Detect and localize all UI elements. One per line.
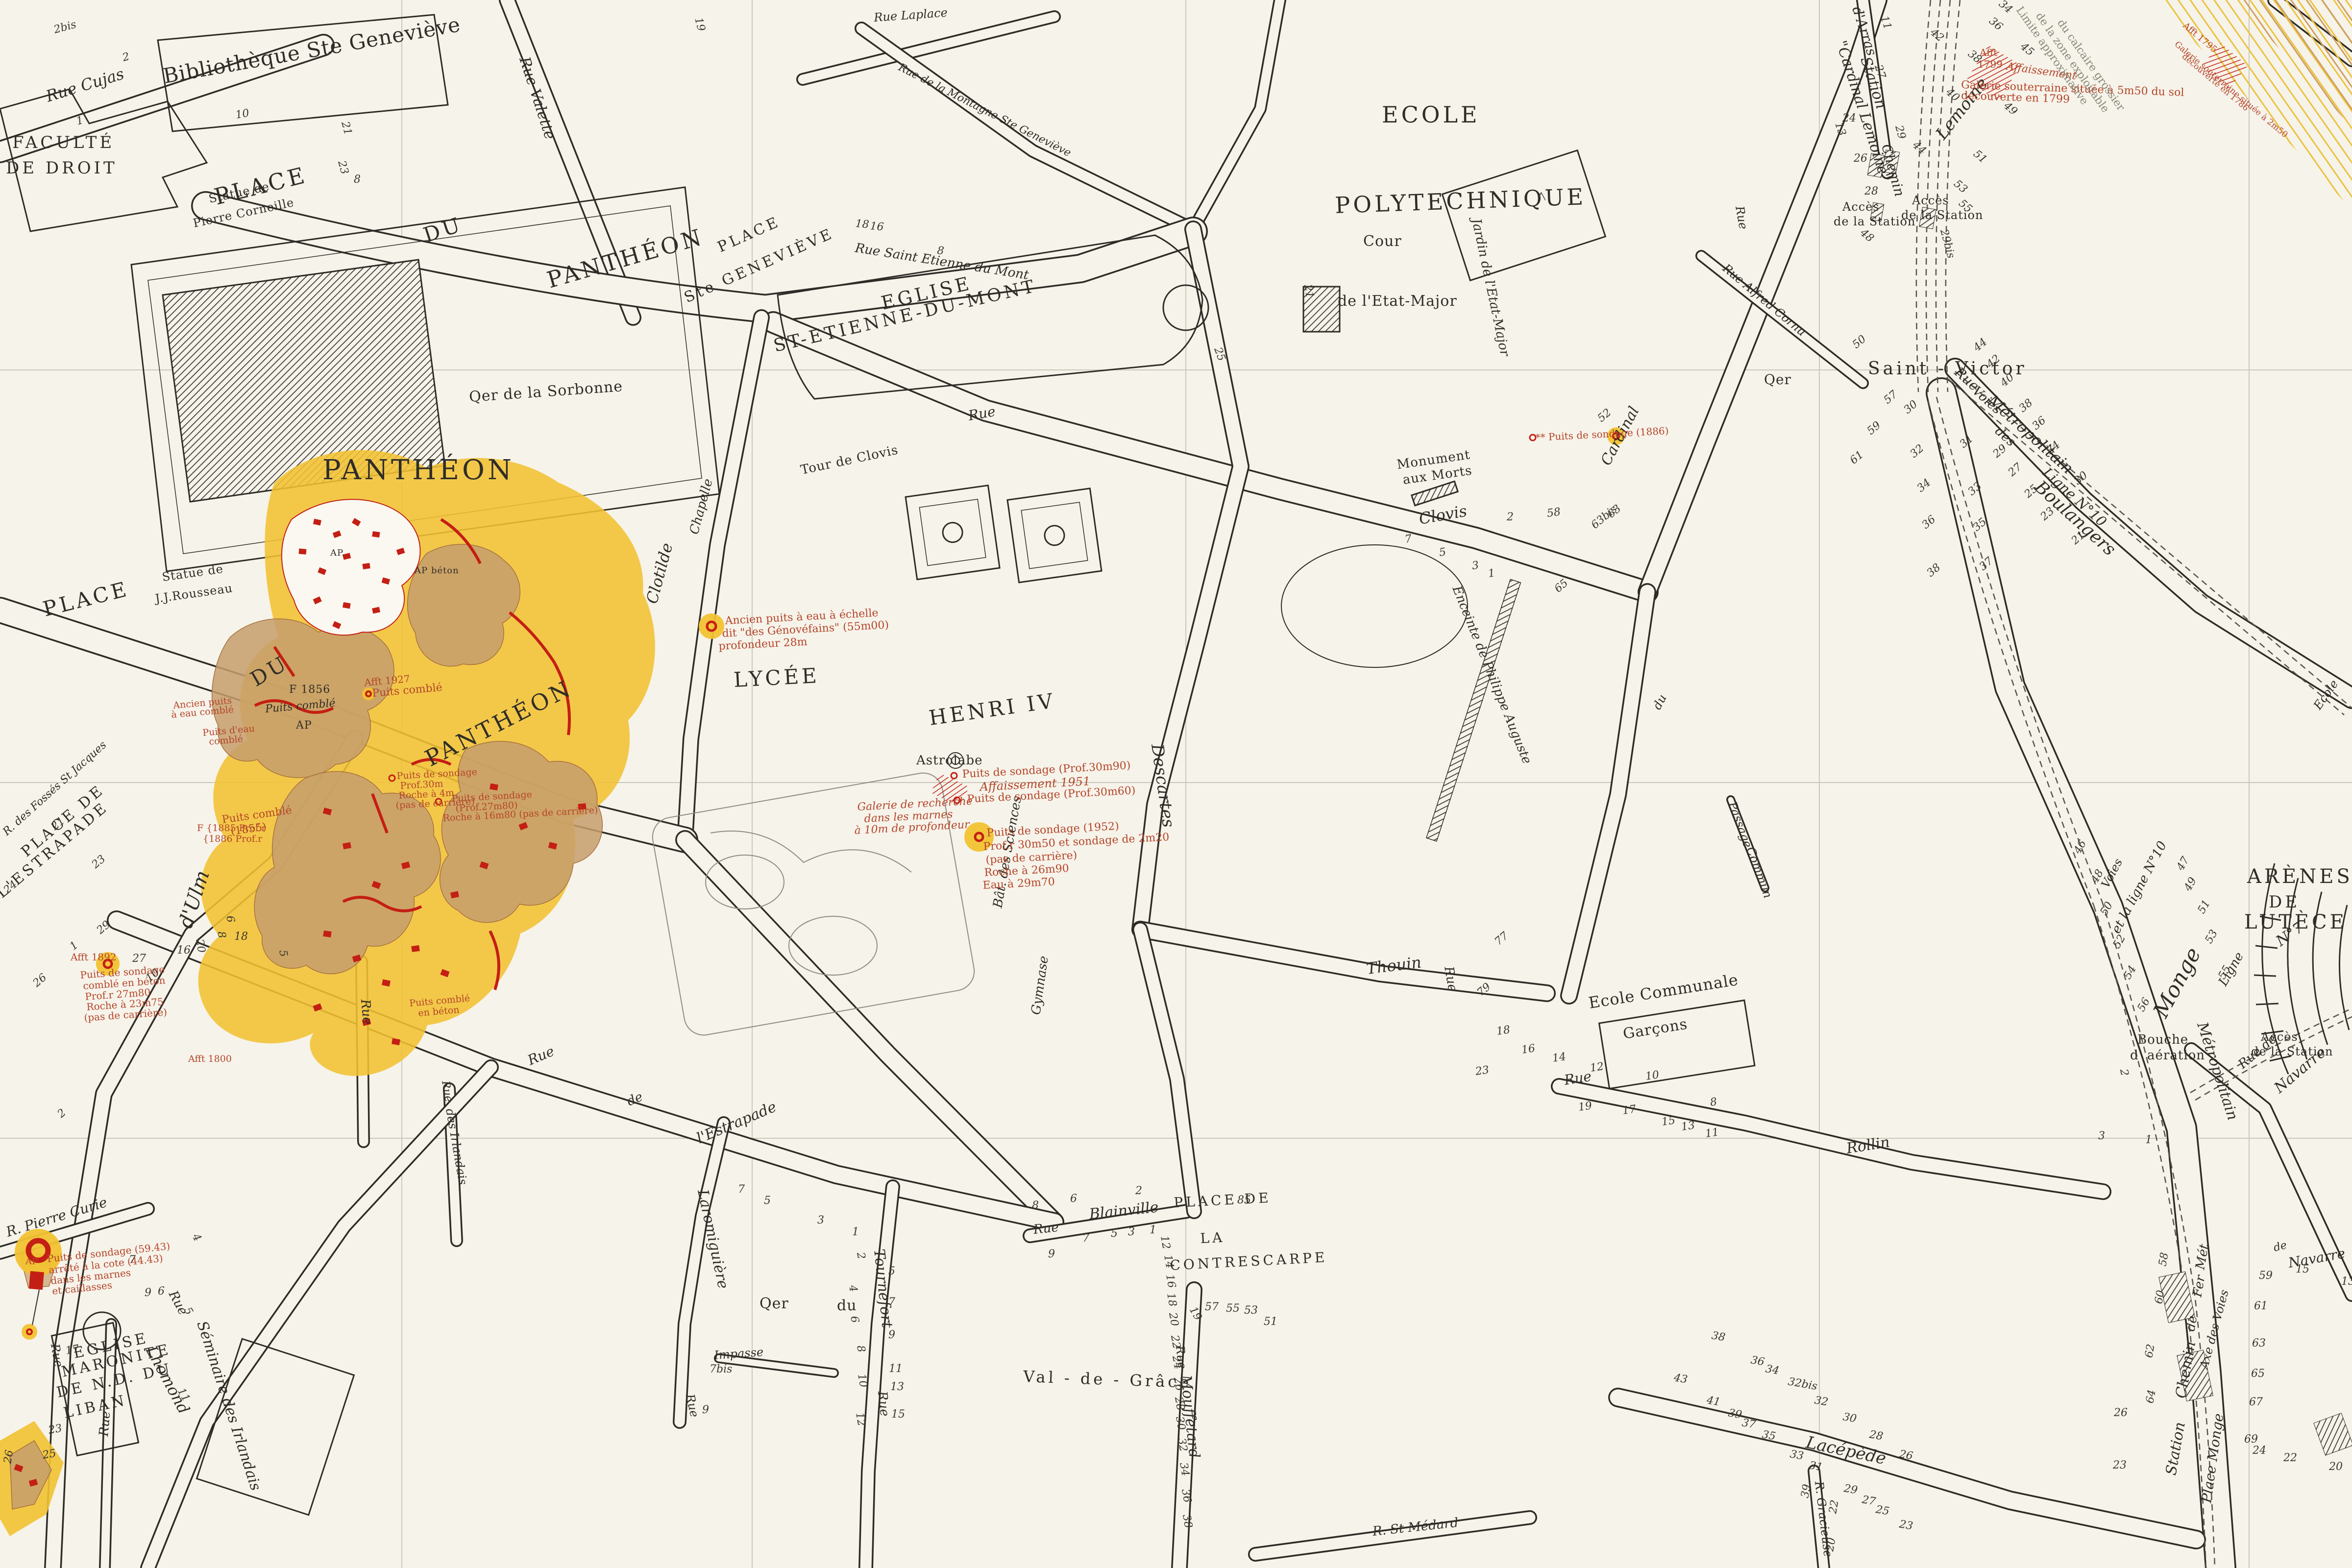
house-number: 60 (2153, 1289, 2167, 1305)
map-label: ECOLE (1382, 101, 1480, 128)
house-number: 69 (2244, 1433, 2258, 1445)
house-number: 7 (738, 1183, 745, 1196)
house-number: 25 (1874, 1503, 1890, 1518)
house-number: 27 (1861, 1494, 1877, 1508)
house-number: 25 (41, 1447, 57, 1462)
house-number: 7bis (710, 1363, 732, 1375)
house-number: 34 (1177, 1462, 1191, 1477)
house-number: 7 (888, 1296, 895, 1308)
house-number: 6 (158, 1285, 165, 1298)
house-number: 11 (889, 1363, 903, 1375)
map-label: Accès (2260, 1030, 2298, 1044)
house-number: 30 (1842, 1411, 1858, 1425)
house-number: 17 (1621, 1103, 1637, 1117)
quarry-well-halo (22, 1324, 37, 1340)
house-number: 36 (1179, 1488, 1193, 1504)
quarry-well-halo (699, 613, 724, 639)
house-number: 63 (2252, 1337, 2266, 1349)
map-label: Astrolabe (916, 753, 983, 768)
house-number: 18 (234, 931, 248, 943)
map-label: AP. (330, 548, 345, 558)
house-number: 28 (1864, 185, 1878, 197)
map-label: DE (2269, 892, 2300, 912)
house-number: 38 (1711, 1329, 1726, 1344)
house-number: 3 (2098, 1130, 2105, 1142)
map-label: Rue (1032, 1220, 1060, 1237)
map-label: de la Station (1901, 208, 1983, 222)
house-number: 13 (890, 1381, 904, 1393)
map-label: Bouche (2137, 1032, 2188, 1047)
map-label: d' aération (2130, 1048, 2205, 1063)
house-number: 20 (2328, 1461, 2343, 1473)
house-number: 13 (2341, 1275, 2352, 1288)
map-label: Cour (1363, 233, 1402, 250)
house-number: 31 (1808, 1459, 1824, 1473)
map-label: LYCÉE (733, 663, 820, 692)
house-number: 13 (1680, 1119, 1695, 1133)
map-label: AP (25, 1256, 38, 1267)
house-number: 59 (2259, 1270, 2273, 1282)
map-label: LA (1200, 1229, 1225, 1247)
house-number: 16 (1520, 1042, 1536, 1056)
house-number: 64 (2144, 1389, 2158, 1404)
house-number: 23 (2112, 1459, 2127, 1471)
house-number: 62 (2143, 1343, 2157, 1359)
map-label: Accès (1842, 200, 1880, 214)
house-number: 37 (1741, 1417, 1757, 1431)
house-number: 85 (1237, 1194, 1251, 1206)
house-number: 23 (1898, 1518, 1914, 1533)
house-number: 53 (1244, 1304, 1258, 1317)
house-number: 9 (702, 1404, 709, 1416)
house-number: 14 (1161, 1254, 1176, 1270)
map-label: DE DROIT (6, 158, 118, 178)
house-number: 21 (1301, 283, 1316, 299)
house-number: 57 (1205, 1301, 1219, 1313)
house-number: 8 (354, 173, 361, 186)
house-number: 24 (2252, 1445, 2266, 1457)
house-number: 32 (1175, 1437, 1189, 1453)
map-label: 1799 (1978, 58, 2003, 70)
map-label: AP (295, 719, 312, 732)
house-number: 24 (1842, 112, 1856, 124)
house-number: 5 (888, 1265, 895, 1277)
house-number: 3 (817, 1214, 824, 1226)
map-label: Qer (1764, 371, 1791, 388)
house-number: 39 (1799, 1483, 1813, 1499)
house-number: 28 (1172, 1396, 1187, 1412)
house-number: 12 (1589, 1060, 1604, 1075)
house-number: 10 (235, 107, 250, 121)
house-number: 11 (1704, 1126, 1719, 1140)
house-number: 58 (1546, 506, 1561, 520)
house-number: 15 (2296, 1263, 2309, 1275)
map-label: de l'Etat-Major (1338, 293, 1457, 310)
house-number: 23 (1474, 1064, 1490, 1078)
house-number: 8 (936, 245, 944, 257)
house-number: 9 (888, 1329, 895, 1341)
house-number: 18 (1495, 1024, 1511, 1038)
map-label: Accès (1911, 194, 1949, 207)
house-number: 41 (1705, 1394, 1721, 1409)
house-number: 10 (1644, 1069, 1660, 1083)
map-label: {1886 Prof.r (203, 833, 263, 844)
house-number: 8 (1032, 1200, 1039, 1212)
house-number: 12 (1158, 1235, 1172, 1250)
house-number: 18 (855, 218, 869, 231)
map-label: Rue (97, 1410, 113, 1437)
house-number: 26 (2113, 1407, 2128, 1419)
house-number: 7 (129, 1254, 136, 1266)
house-number: 32 (1813, 1394, 1829, 1408)
house-number: 26 (1, 1449, 16, 1465)
map-label: FACULTÉ (12, 132, 115, 152)
house-number: 15 (1661, 1114, 1676, 1128)
map-label: ARÈNES (2247, 865, 2352, 888)
map-label: de (2183, 1314, 2200, 1332)
house-number: 34 (1764, 1363, 1780, 1377)
map-label: AP béton (414, 565, 459, 576)
house-number: 3 (1128, 1226, 1135, 1238)
house-number: 38 (1180, 1514, 1194, 1529)
house-number: 14 (1551, 1051, 1567, 1065)
house-number: 16 (177, 944, 191, 956)
house-number: 35 (1761, 1428, 1777, 1443)
house-number: 1 (2145, 1134, 2152, 1146)
house-number: 18 (1164, 1292, 1178, 1308)
map-label: de la Station (2251, 1045, 2333, 1058)
house-number: 9 (145, 1287, 151, 1299)
house-number: 16 (869, 220, 884, 233)
house-number: 10 (855, 1373, 869, 1389)
house-number: 22 (2283, 1452, 2297, 1464)
house-number: 6 (1070, 1193, 1077, 1205)
house-number: 26 (1898, 1448, 1914, 1463)
house-number: 26 (1171, 1376, 1186, 1392)
historic-quarry-map-paris-pantheon: FACULTÉDE DROITBibliothèque Ste Genevièv… (0, 0, 2352, 1568)
house-number: 19 (1577, 1100, 1592, 1114)
house-number: 12 (853, 1412, 867, 1427)
map-label: Afft 1800 (188, 1053, 232, 1064)
house-number: 1 (1150, 1224, 1156, 1236)
house-number: 24 (1170, 1354, 1184, 1371)
house-number: 29 (1842, 1482, 1859, 1497)
house-number: 67 (2249, 1396, 2263, 1408)
house-number: 55 (1226, 1302, 1240, 1315)
house-number: 36 (1750, 1354, 1765, 1368)
map-label: Rue (875, 1390, 892, 1418)
house-number: 61 (2254, 1300, 2268, 1312)
house-number: 7 (1082, 1232, 1089, 1245)
house-number: 2 (1135, 1185, 1142, 1197)
house-number: 9 (1048, 1248, 1055, 1260)
house-number: 20 (1166, 1311, 1181, 1327)
map-label: F 1856 (289, 684, 330, 696)
house-number: 5 (764, 1195, 771, 1207)
house-number: 27 (132, 953, 146, 965)
quarry-shaft-icon (29, 1271, 44, 1290)
map-label: Qer (759, 1295, 789, 1312)
house-number: 20 (193, 938, 208, 954)
house-number: 22 (1827, 1499, 1841, 1515)
house-number: 30 (1173, 1416, 1187, 1431)
house-number: 51 (1264, 1316, 1277, 1328)
house-number: 22 (1168, 1334, 1183, 1350)
house-number: 26 (1853, 152, 1867, 165)
house-number: 23 (47, 1422, 63, 1437)
house-number: 43 (1672, 1372, 1689, 1386)
quarry-white-patch (282, 499, 420, 635)
map-label: Afft 1892 (70, 951, 117, 963)
house-number: 39 (1727, 1407, 1743, 1421)
house-number: 33 (1789, 1448, 1805, 1462)
house-number: 17 (65, 1343, 80, 1357)
house-number: 28 (1868, 1428, 1884, 1443)
house-number: 15 (891, 1408, 905, 1421)
house-number: 20 (1824, 1537, 1838, 1553)
house-number: 16 (1163, 1274, 1177, 1289)
house-number: 2 (1506, 511, 1514, 523)
house-number: 5 (1111, 1227, 1118, 1240)
house-number: 65 (2251, 1368, 2265, 1380)
map-label: Rue (358, 998, 374, 1025)
map-canvas: FACULTÉDE DROITBibliothèque Ste Genevièv… (0, 0, 2352, 1568)
house-number: 1 (852, 1226, 859, 1238)
map-label: PANTHÉON (322, 453, 514, 486)
map-label: du (837, 1297, 857, 1314)
house-number: 58 (2156, 1251, 2171, 1267)
map-label: F {1885 Prof.r (197, 823, 266, 833)
